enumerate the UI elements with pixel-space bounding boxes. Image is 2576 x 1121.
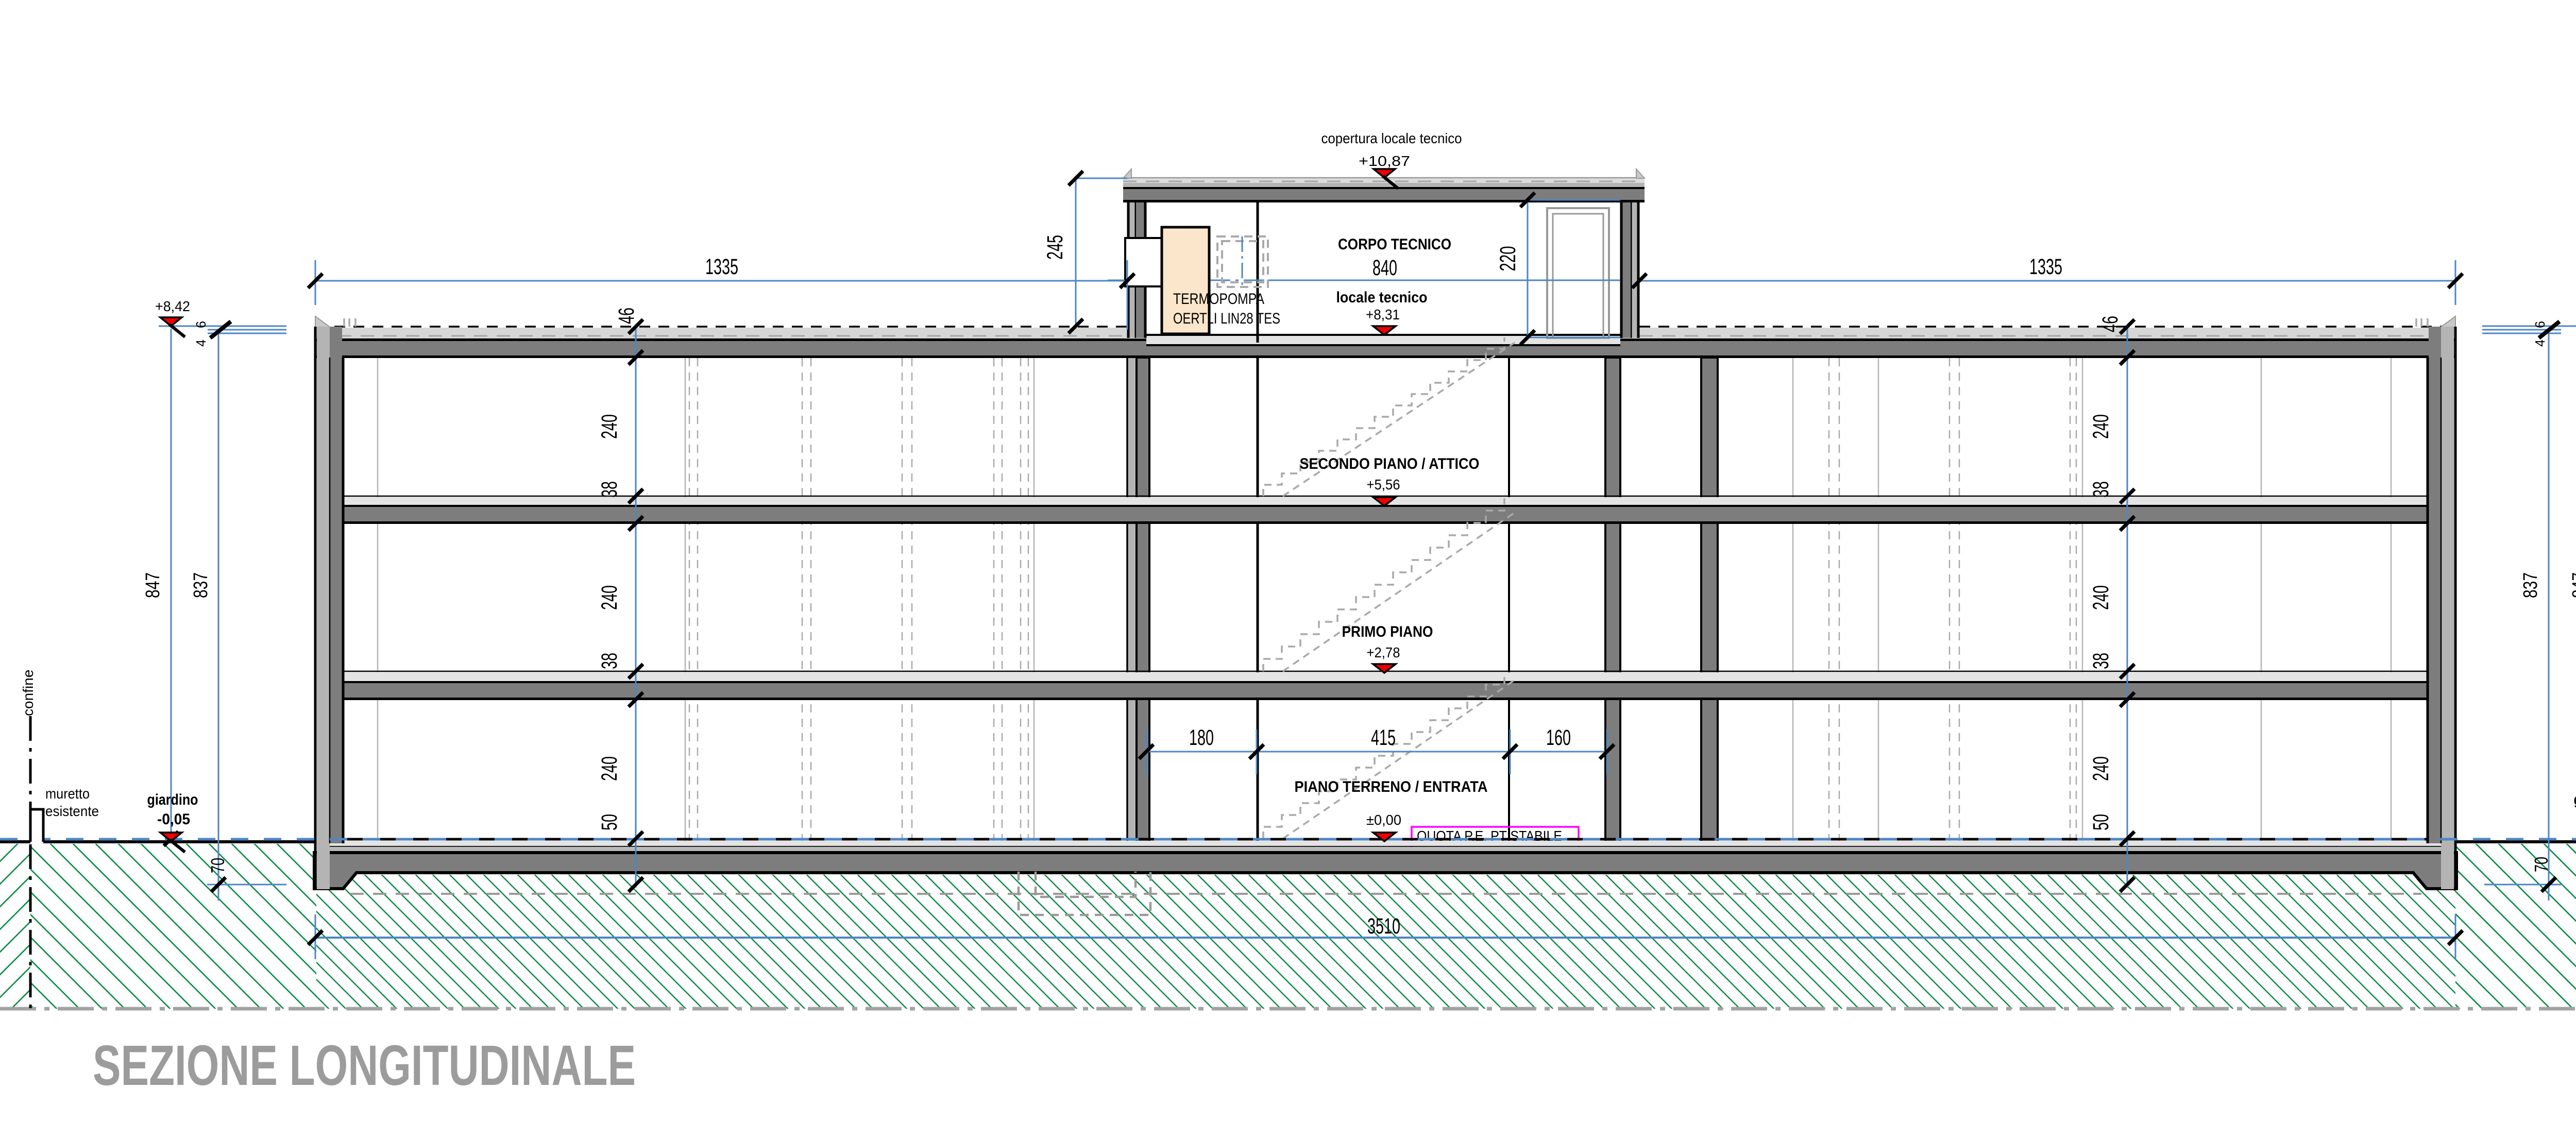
svg-text:70: 70 [207, 858, 228, 873]
svg-text:±0,00: ±0,00 [1366, 812, 1401, 828]
svg-text:46: 46 [614, 308, 639, 324]
svg-text:46: 46 [2098, 316, 2123, 332]
svg-text:38: 38 [597, 481, 622, 498]
svg-text:70: 70 [2531, 857, 2552, 872]
svg-text:160: 160 [1546, 725, 1571, 750]
svg-text:50: 50 [597, 814, 622, 830]
svg-text:locale tecnico: locale tecnico [1336, 289, 1428, 306]
svg-text:245: 245 [1043, 235, 1067, 260]
svg-text:esistente: esistente [45, 803, 99, 819]
svg-text:+8,31: +8,31 [1366, 307, 1400, 322]
svg-text:6: 6 [193, 321, 209, 328]
svg-text:240: 240 [597, 585, 622, 610]
svg-text:38: 38 [2089, 481, 2113, 498]
svg-text:240: 240 [2089, 756, 2113, 781]
svg-text:240: 240 [597, 414, 622, 439]
svg-text:220: 220 [1496, 246, 1520, 271]
svg-text:SEZIONE LONGITUDINALE: SEZIONE LONGITUDINALE [93, 1034, 636, 1097]
svg-text:copertura locale tecnico: copertura locale tecnico [1321, 130, 1462, 146]
svg-text:giardino: giardino [2574, 791, 2576, 808]
svg-text:confine: confine [20, 670, 36, 716]
svg-text:+8,42: +8,42 [155, 298, 190, 314]
svg-text:847: 847 [2569, 572, 2576, 598]
svg-text:-0,05: -0,05 [157, 811, 190, 828]
svg-text:837: 837 [190, 572, 212, 598]
svg-text:840: 840 [1372, 256, 1397, 280]
svg-text:415: 415 [1371, 725, 1396, 750]
svg-text:giardino: giardino [147, 791, 198, 808]
svg-text:1335: 1335 [2029, 254, 2062, 279]
svg-text:+5,56: +5,56 [1367, 477, 1400, 492]
svg-text:180: 180 [1189, 725, 1214, 750]
svg-text:240: 240 [2089, 585, 2113, 610]
svg-text:50: 50 [2089, 814, 2113, 830]
svg-text:240: 240 [2089, 414, 2113, 439]
svg-text:SECONDO PIANO / ATTICO: SECONDO PIANO / ATTICO [1300, 455, 1480, 472]
svg-text:TERMOPOMPA: TERMOPOMPA [1173, 291, 1264, 308]
svg-text:4: 4 [193, 339, 209, 347]
svg-text:6: 6 [2532, 321, 2548, 328]
svg-text:CORPO TECNICO: CORPO TECNICO [1338, 236, 1451, 253]
svg-text:837: 837 [2520, 572, 2541, 598]
svg-text:+10,87: +10,87 [1359, 153, 1410, 169]
svg-text:240: 240 [597, 756, 622, 781]
svg-text:+2,78: +2,78 [1367, 644, 1400, 660]
svg-text:38: 38 [2089, 653, 2113, 669]
svg-text:1335: 1335 [705, 254, 738, 279]
svg-text:PRIMO PIANO: PRIMO PIANO [1342, 623, 1433, 640]
svg-text:847: 847 [142, 572, 164, 598]
svg-text:muretto: muretto [45, 786, 90, 802]
svg-text:3510: 3510 [1367, 914, 1400, 939]
svg-text:OERTLI LIN28 TES: OERTLI LIN28 TES [1173, 310, 1280, 327]
svg-text:4: 4 [2532, 339, 2548, 347]
svg-text:PIANO TERRENO / ENTRATA: PIANO TERRENO / ENTRATA [1295, 778, 1488, 795]
svg-text:38: 38 [597, 653, 622, 669]
